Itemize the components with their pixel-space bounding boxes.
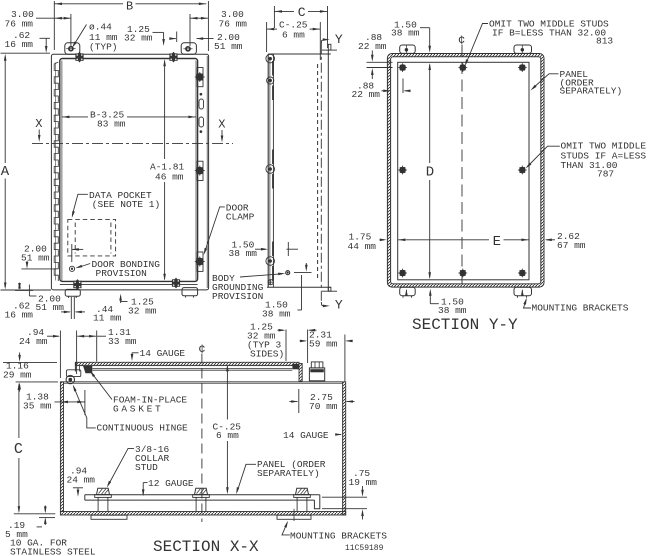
svg-text:C: C — [14, 441, 23, 458]
svg-text:GASKET: GASKET — [113, 404, 163, 415]
svg-text:Y: Y — [335, 298, 343, 313]
svg-text:38 mm: 38 mm — [229, 248, 258, 259]
svg-text:6 mm: 6 mm — [216, 430, 239, 441]
svg-text:38 mm: 38 mm — [262, 309, 291, 320]
svg-text:51 mm: 51 mm — [21, 253, 50, 264]
svg-text:38 mm: 38 mm — [438, 305, 467, 316]
svg-text:ø.44: ø.44 — [89, 22, 112, 33]
svg-text:83 mm: 83 mm — [97, 119, 126, 130]
svg-text:Y: Y — [335, 32, 343, 47]
svg-text:A: A — [1, 164, 10, 180]
svg-text:51 mm: 51 mm — [214, 41, 243, 52]
svg-text:22 mm: 22 mm — [358, 41, 387, 52]
svg-text:X: X — [35, 117, 42, 131]
svg-text:PROVISION: PROVISION — [212, 291, 263, 302]
svg-text:PROVISION: PROVISION — [96, 268, 147, 279]
svg-text:76 mm: 76 mm — [5, 19, 34, 30]
svg-text:24 mm: 24 mm — [67, 475, 96, 486]
svg-text:29 mm: 29 mm — [3, 370, 32, 381]
svg-text:X: X — [218, 117, 225, 131]
svg-text:SECTION X-X: SECTION X-X — [153, 538, 259, 556]
svg-text:11 mm: 11 mm — [93, 313, 122, 324]
svg-text:38 mm: 38 mm — [391, 28, 420, 39]
svg-text:6 mm: 6 mm — [282, 30, 305, 41]
svg-text:22 mm: 22 mm — [352, 89, 381, 100]
svg-text:MOUNTING BRACKETS: MOUNTING BRACKETS — [532, 303, 629, 314]
svg-text:IF B=LESS THAN 32.00: IF B=LESS THAN 32.00 — [492, 28, 606, 39]
svg-text:35 mm: 35 mm — [23, 401, 52, 412]
svg-text:11C59189: 11C59189 — [345, 544, 384, 553]
svg-text:E: E — [493, 234, 501, 250]
svg-text:STUD: STUD — [135, 462, 158, 473]
svg-text:32 mm: 32 mm — [128, 306, 157, 317]
svg-text:67 mm: 67 mm — [557, 240, 586, 251]
svg-text:59 mm: 59 mm — [309, 339, 338, 350]
svg-text:46 mm: 46 mm — [155, 172, 184, 183]
svg-text:44 mm: 44 mm — [348, 241, 377, 252]
svg-text:16 mm: 16 mm — [5, 39, 34, 50]
svg-text:MOUNTING BRACKETS: MOUNTING BRACKETS — [290, 531, 387, 542]
svg-text:SECTION Y-Y: SECTION Y-Y — [412, 316, 518, 334]
svg-text:B: B — [126, 0, 133, 13]
svg-text:70 mm: 70 mm — [309, 401, 338, 412]
svg-text:813: 813 — [596, 36, 613, 47]
svg-text:14 GAUGE: 14 GAUGE — [140, 348, 186, 359]
svg-text:33 mm: 33 mm — [108, 336, 137, 347]
svg-text:12 GAUGE: 12 GAUGE — [148, 478, 194, 489]
svg-text:D: D — [426, 165, 434, 181]
svg-text:14 GAUGE: 14 GAUGE — [283, 430, 329, 441]
svg-text:SEPARATELY): SEPARATELY) — [560, 86, 623, 97]
svg-text:16 mm: 16 mm — [5, 310, 34, 321]
svg-text:(TYP): (TYP) — [89, 42, 118, 53]
svg-text:CONTINUOUS HINGE: CONTINUOUS HINGE — [97, 423, 189, 434]
svg-text:76 mm: 76 mm — [219, 19, 248, 30]
svg-text:(SEE NOTE 1): (SEE NOTE 1) — [92, 199, 160, 210]
svg-text:24 mm: 24 mm — [19, 336, 48, 347]
svg-text:51 mm: 51 mm — [36, 302, 65, 313]
svg-text:C: C — [298, 5, 306, 20]
svg-text:SIDES): SIDES) — [250, 349, 284, 360]
svg-text:CLAMP: CLAMP — [226, 212, 255, 223]
svg-text:787: 787 — [597, 169, 614, 180]
svg-text:STAINLESS STEEL: STAINLESS STEEL — [10, 547, 96, 556]
svg-text:SEPARATELY): SEPARATELY) — [257, 468, 320, 479]
svg-text:32 mm: 32 mm — [124, 33, 153, 44]
